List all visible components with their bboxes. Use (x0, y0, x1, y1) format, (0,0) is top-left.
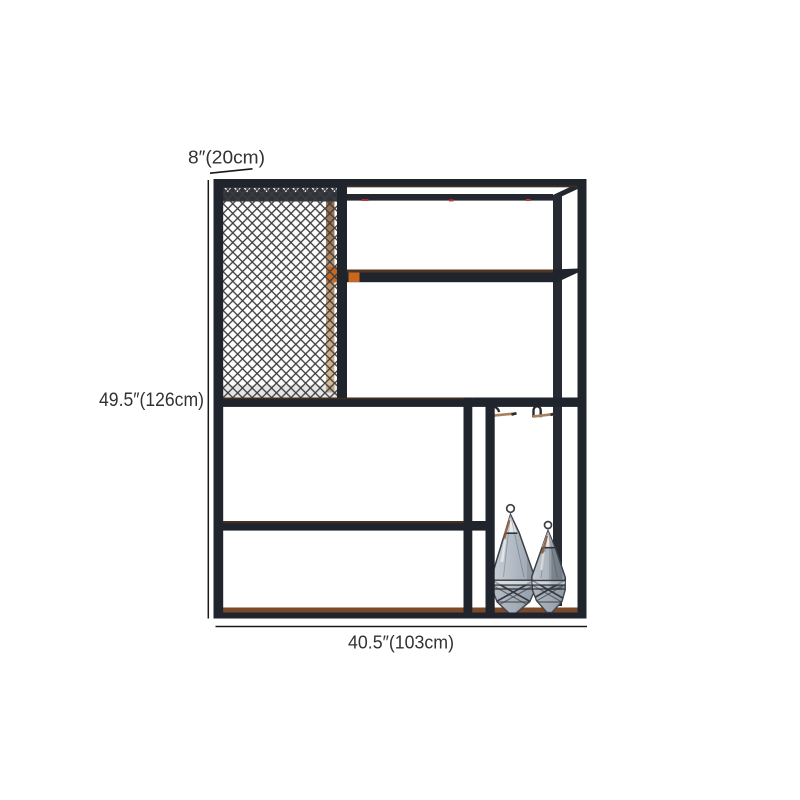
svg-text:40.5″(103cm): 40.5″(103cm) (348, 631, 454, 652)
svg-text:49.5″(126cm): 49.5″(126cm) (99, 390, 204, 411)
svg-text:8″(20cm): 8″(20cm) (188, 147, 265, 168)
